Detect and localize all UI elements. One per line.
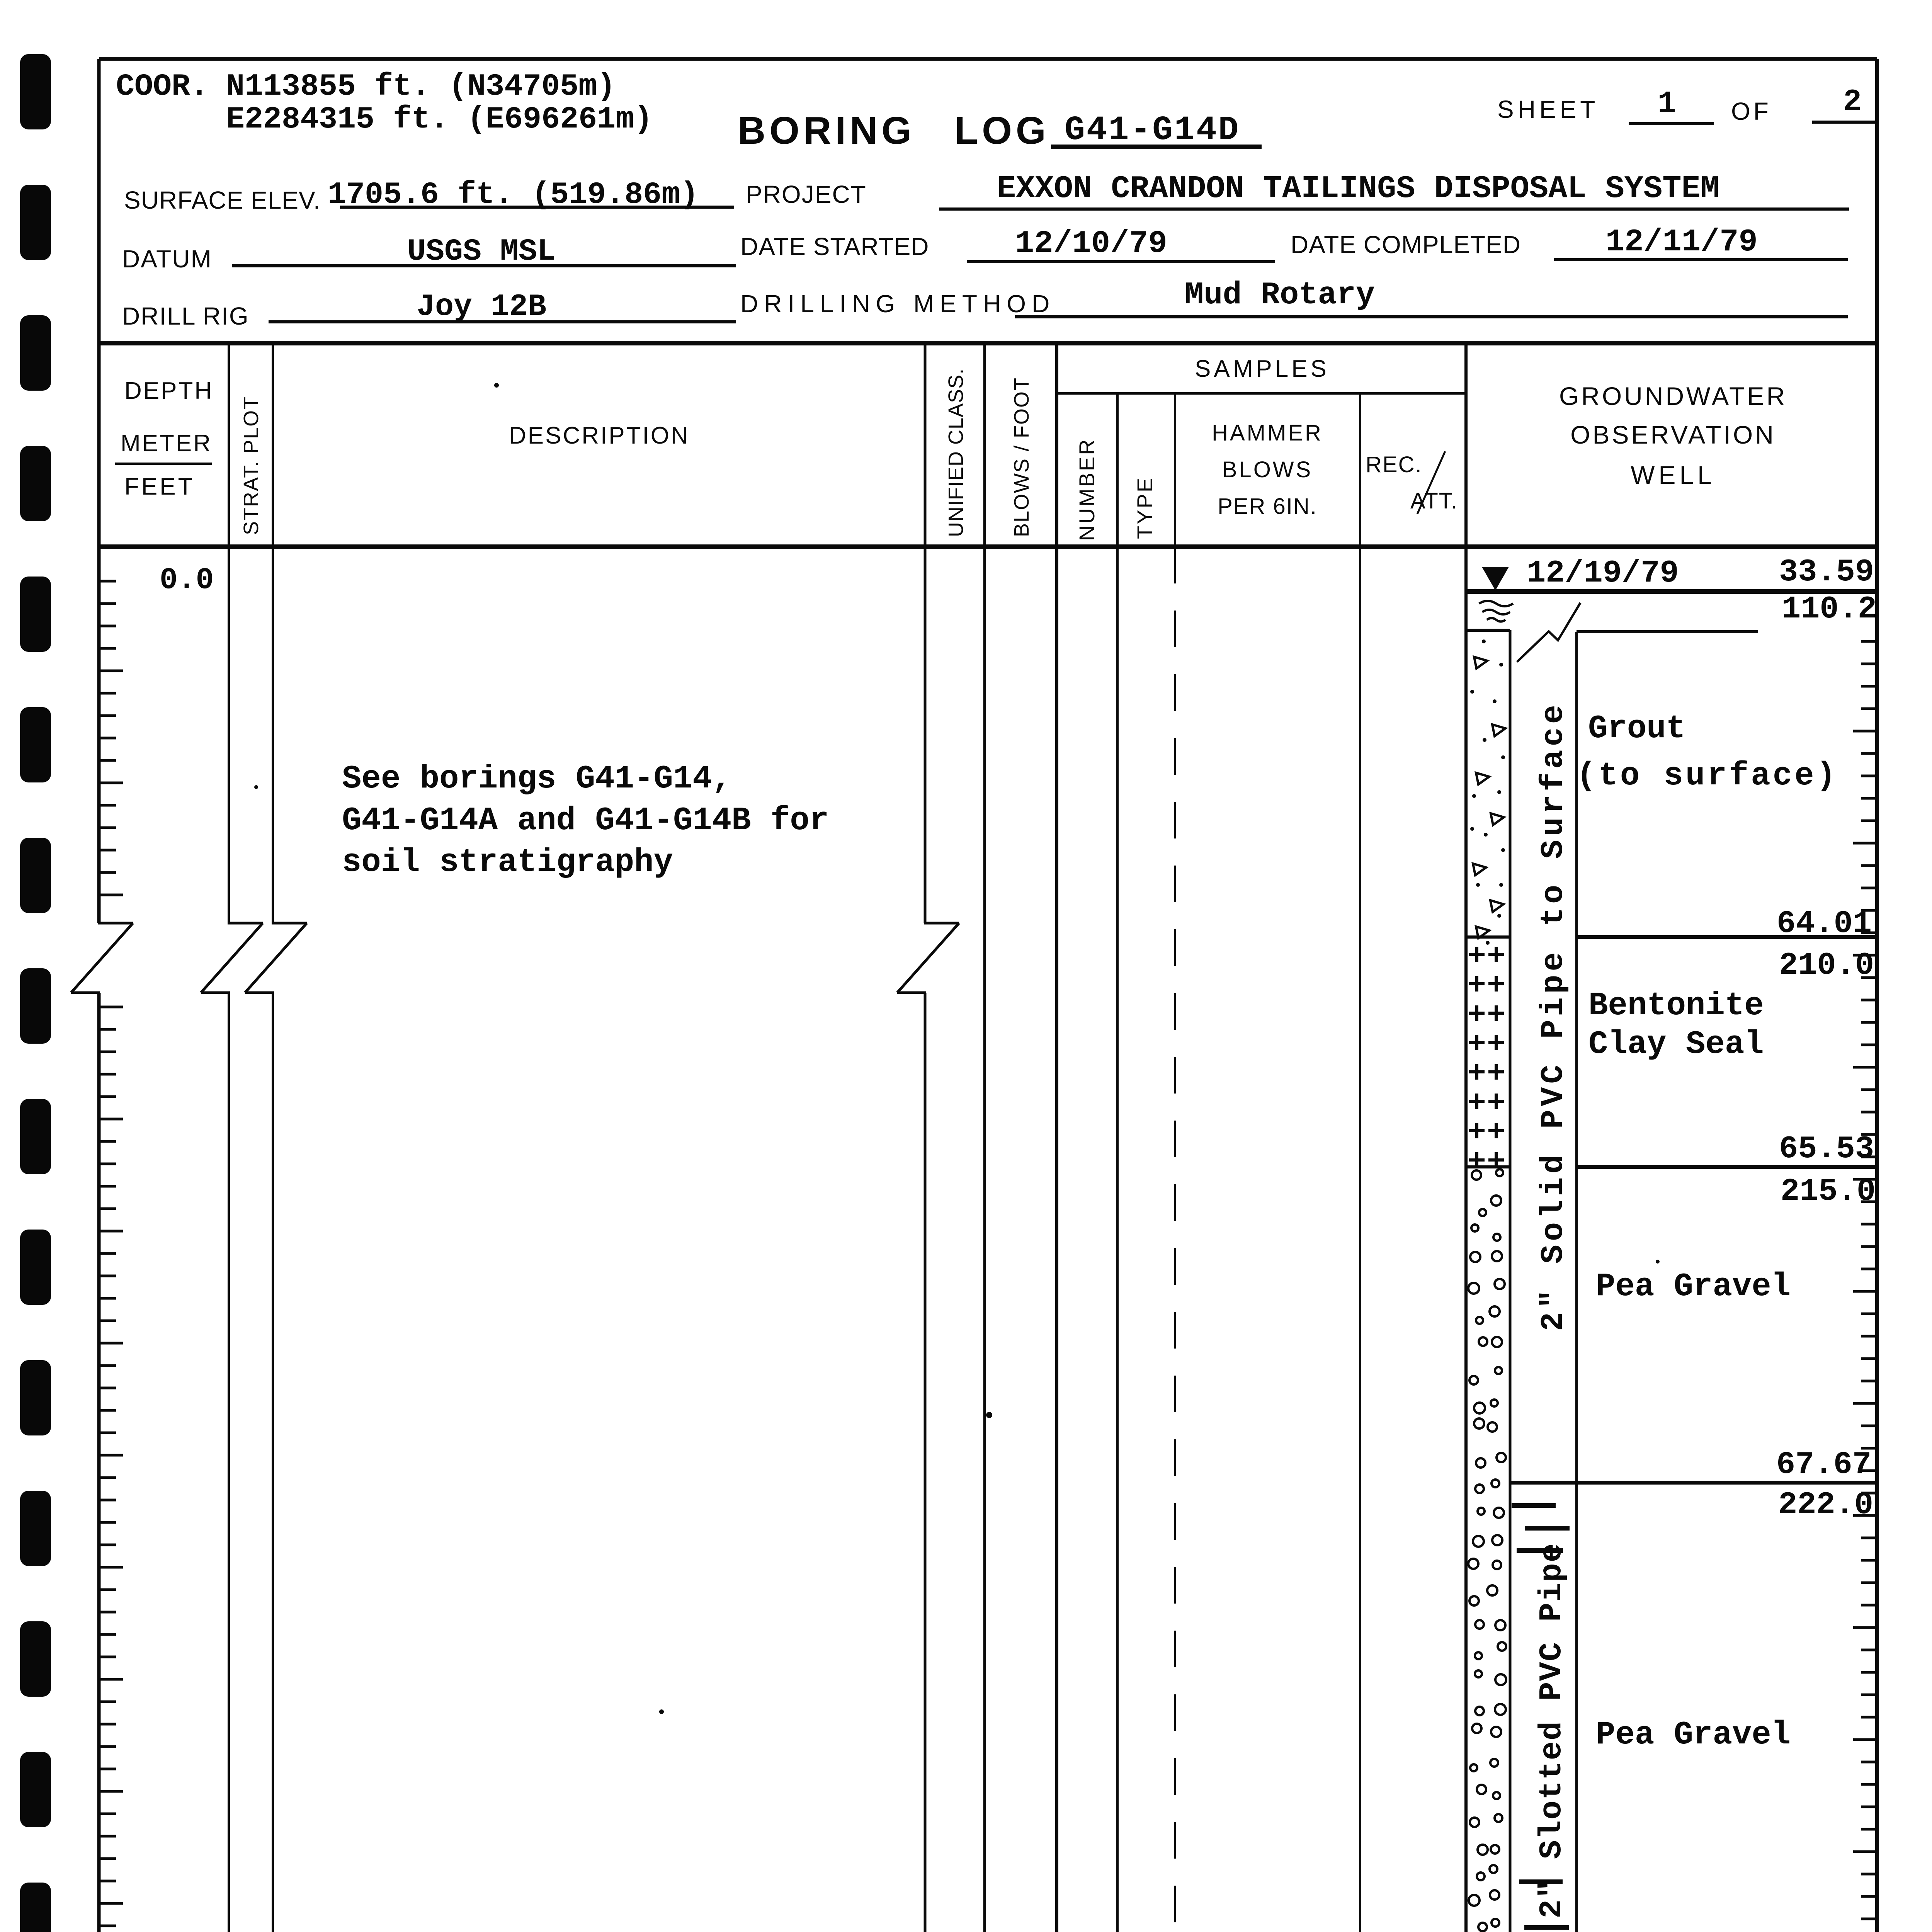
svg-text:Mud Rotary: Mud Rotary <box>1185 277 1375 313</box>
svg-text:METER: METER <box>121 430 212 457</box>
svg-text:Joy 12B: Joy 12B <box>417 289 546 325</box>
svg-text:DEPTH: DEPTH <box>124 378 213 404</box>
svg-text:EXXON CRANDON TAILINGS DISPOSA: EXXON CRANDON TAILINGS DISPOSAL SYSTEM <box>997 171 1719 207</box>
svg-text:0.0: 0.0 <box>160 563 214 597</box>
svg-text:2" Solid PVC Pipe to Surface: 2" Solid PVC Pipe to Surface <box>1536 701 1571 1331</box>
svg-text:DESCRIPTION: DESCRIPTION <box>509 422 690 449</box>
svg-text:12/10/79: 12/10/79 <box>1015 226 1167 262</box>
svg-text:2" Slotted PVC Pipe: 2" Slotted PVC Pipe <box>1534 1543 1570 1918</box>
svg-text:64.01: 64.01 <box>1777 906 1872 942</box>
svg-text:STRAT. PLOT: STRAT. PLOT <box>240 396 263 535</box>
svg-text:SHEET: SHEET <box>1497 95 1599 123</box>
svg-text:Pea Gravel: Pea Gravel <box>1596 1269 1791 1305</box>
svg-text:Grout: Grout <box>1588 711 1685 747</box>
svg-text:65.53: 65.53 <box>1779 1131 1874 1167</box>
svg-text:REC.: REC. <box>1366 452 1422 477</box>
svg-text:DRILL RIG: DRILL RIG <box>122 302 249 330</box>
svg-text:FEET: FEET <box>124 473 195 500</box>
svg-text:OF: OF <box>1731 97 1772 125</box>
svg-text:33.59: 33.59 <box>1779 554 1874 590</box>
svg-text:COOR.: COOR. <box>116 69 209 104</box>
svg-text:SURFACE ELEV.: SURFACE ELEV. <box>124 186 321 214</box>
svg-text:See borings G41-G14,: See borings G41-G14, <box>342 761 731 798</box>
svg-text:110.2: 110.2 <box>1782 591 1877 627</box>
svg-text:BORING: BORING <box>738 109 915 152</box>
svg-text:NUMBER: NUMBER <box>1075 438 1099 541</box>
svg-text:HAMMER: HAMMER <box>1212 420 1323 446</box>
svg-text:OBSERVATION: OBSERVATION <box>1570 420 1776 449</box>
svg-text:Pea Gravel: Pea Gravel <box>1596 1717 1791 1753</box>
svg-text:G41-G14D: G41-G14D <box>1065 111 1240 150</box>
svg-text:DATE COMPLETED: DATE COMPLETED <box>1291 231 1521 259</box>
svg-text:1: 1 <box>1658 87 1676 122</box>
svg-text:215.0: 215.0 <box>1781 1173 1876 1209</box>
svg-text:DRILLING METHOD: DRILLING METHOD <box>740 290 1055 318</box>
svg-text:TYPE: TYPE <box>1133 476 1157 539</box>
svg-text:N113855 ft. (N34705m): N113855 ft. (N34705m) <box>226 69 616 104</box>
svg-text:ATT.: ATT. <box>1410 488 1458 514</box>
svg-text:222.0: 222.0 <box>1778 1487 1873 1523</box>
svg-text:soil stratigraphy: soil stratigraphy <box>342 844 673 881</box>
svg-text:GROUNDWATER: GROUNDWATER <box>1559 382 1787 410</box>
svg-text:Clay Seal: Clay Seal <box>1588 1026 1764 1063</box>
svg-text:BLOWS / FOOT: BLOWS / FOOT <box>1010 377 1033 537</box>
svg-text:DATUM: DATUM <box>122 245 212 273</box>
svg-text:(to surface): (to surface) <box>1577 758 1838 794</box>
svg-text:E2284315 ft. (E696261m): E2284315 ft. (E696261m) <box>226 102 653 137</box>
svg-text:PER 6IN.: PER 6IN. <box>1218 494 1317 519</box>
svg-text:BLOWS: BLOWS <box>1222 457 1313 482</box>
svg-text:G41-G14A and G41-G14B for: G41-G14A and G41-G14B for <box>342 803 829 839</box>
svg-text:UNIFIED CLASS.: UNIFIED CLASS. <box>944 368 968 537</box>
svg-text:12/19/79: 12/19/79 <box>1527 555 1679 591</box>
svg-text:Bentonite: Bentonite <box>1588 988 1764 1024</box>
svg-text:210.0: 210.0 <box>1779 947 1874 983</box>
svg-text:67.67: 67.67 <box>1776 1447 1871 1483</box>
svg-text:DATE STARTED: DATE STARTED <box>740 233 929 260</box>
svg-text:SAMPLES: SAMPLES <box>1195 355 1330 382</box>
svg-text:LOG: LOG <box>954 109 1050 152</box>
svg-text:2: 2 <box>1843 85 1862 120</box>
svg-text:12/11/79: 12/11/79 <box>1605 224 1758 260</box>
svg-text:PROJECT: PROJECT <box>746 180 867 208</box>
svg-text:USGS MSL: USGS MSL <box>407 234 556 269</box>
svg-text:WELL: WELL <box>1631 461 1716 489</box>
